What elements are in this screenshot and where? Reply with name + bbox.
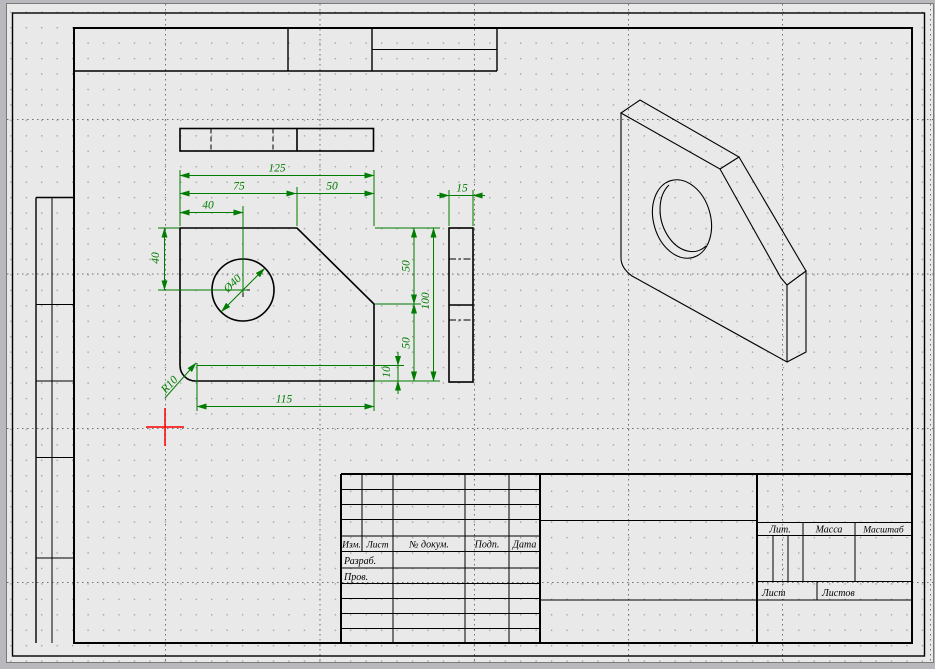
dim-10: 10: [381, 366, 393, 378]
dim-50-right-upper: 50: [401, 260, 413, 272]
tb-label-list: Лист: [365, 541, 388, 551]
dim-125: 125: [268, 163, 286, 175]
dim-15: 15: [456, 183, 468, 195]
tb-label-developed: Разраб.: [343, 556, 376, 567]
dim-50-right-lower: 50: [401, 337, 413, 349]
tb-label-scale: Масштаб: [862, 525, 905, 536]
dim-115: 115: [276, 394, 293, 406]
tb-label-sheet: Лист: [761, 588, 785, 599]
tb-label-mass: Масса: [815, 525, 843, 536]
tb-label-doc: № докум.: [408, 540, 449, 551]
tb-label-lit: Лит.: [768, 525, 791, 536]
dim-40-top: 40: [202, 200, 214, 212]
dim-40-left: 40: [150, 252, 162, 264]
tb-label-izm: Изм.: [341, 541, 361, 551]
dim-75: 75: [233, 181, 245, 193]
tb-label-checked: Пров.: [343, 572, 368, 583]
tb-label-date: Дата: [512, 540, 537, 551]
drawing-sheet-svg: Изм. Лист № докум. Подп. Дата Разраб. Пр…: [0, 0, 935, 669]
tb-label-sheets: Листов: [821, 588, 855, 599]
tb-label-sign: Подп.: [474, 540, 500, 551]
cad-canvas: Изм. Лист № докум. Подп. Дата Разраб. Пр…: [0, 0, 935, 669]
grid-fine-dots: [7, 4, 933, 662]
dim-100: 100: [420, 292, 432, 310]
dim-50-top: 50: [326, 181, 338, 193]
